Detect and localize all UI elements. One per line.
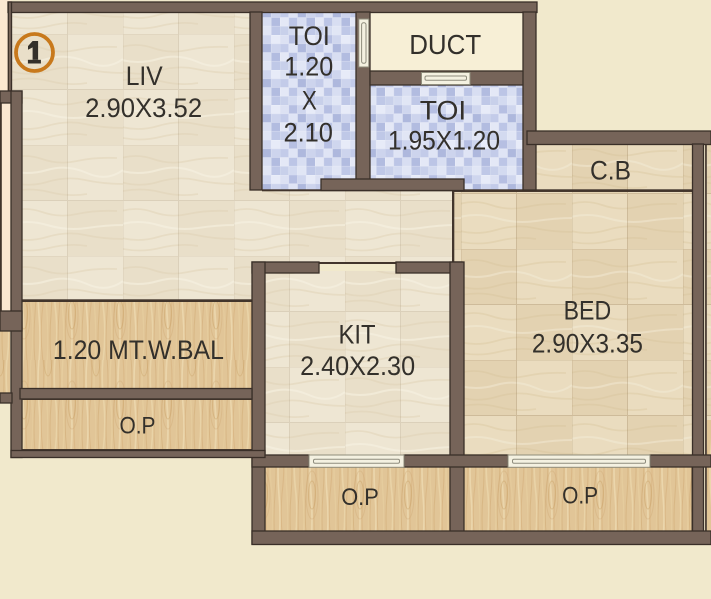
- svg-text:KIT: KIT: [339, 320, 376, 350]
- svg-text:TOI: TOI: [289, 21, 330, 51]
- svg-text:BED: BED: [564, 296, 612, 326]
- svg-text:1.20 MT.W.BAL: 1.20 MT.W.BAL: [53, 335, 224, 365]
- svg-text:1.20: 1.20: [284, 52, 333, 82]
- svg-text:O.P: O.P: [341, 484, 379, 511]
- svg-text:2.10: 2.10: [283, 118, 333, 148]
- svg-text:X: X: [302, 86, 317, 116]
- svg-text:O.P: O.P: [120, 413, 156, 440]
- svg-text:TOI: TOI: [420, 96, 467, 126]
- svg-text:2.40X2.30: 2.40X2.30: [300, 351, 415, 381]
- svg-text:2.90X3.35: 2.90X3.35: [532, 329, 643, 359]
- svg-text:1.95X1.20: 1.95X1.20: [388, 126, 500, 156]
- svg-text:C.B: C.B: [590, 156, 631, 186]
- svg-text:O.P: O.P: [562, 483, 598, 510]
- svg-text:2.90X3.52: 2.90X3.52: [85, 93, 202, 123]
- svg-text:DUCT: DUCT: [409, 29, 481, 60]
- svg-text:LIV: LIV: [126, 61, 163, 91]
